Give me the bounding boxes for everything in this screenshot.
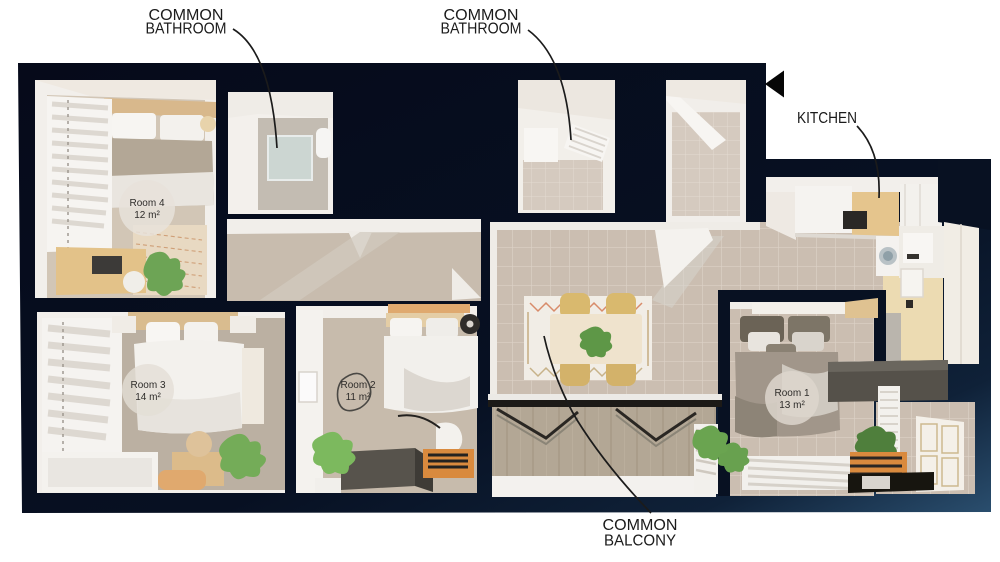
svg-text:KITCHEN: KITCHEN <box>797 110 857 127</box>
svg-text:11 m²: 11 m² <box>346 392 371 403</box>
svg-text:BALCONY: BALCONY <box>604 533 676 550</box>
svg-text:12 m²: 12 m² <box>134 210 160 221</box>
svg-text:BATHROOM: BATHROOM <box>441 21 522 38</box>
svg-text:BATHROOM: BATHROOM <box>146 21 227 38</box>
svg-text:Room 2: Room 2 <box>340 380 375 391</box>
svg-text:13 m²: 13 m² <box>779 400 805 411</box>
svg-text:Room 4: Room 4 <box>129 198 164 209</box>
svg-text:Room 3: Room 3 <box>130 380 165 391</box>
svg-text:COMMON: COMMON <box>603 517 678 534</box>
svg-text:14 m²: 14 m² <box>135 392 161 403</box>
svg-text:Room 1: Room 1 <box>774 388 809 399</box>
